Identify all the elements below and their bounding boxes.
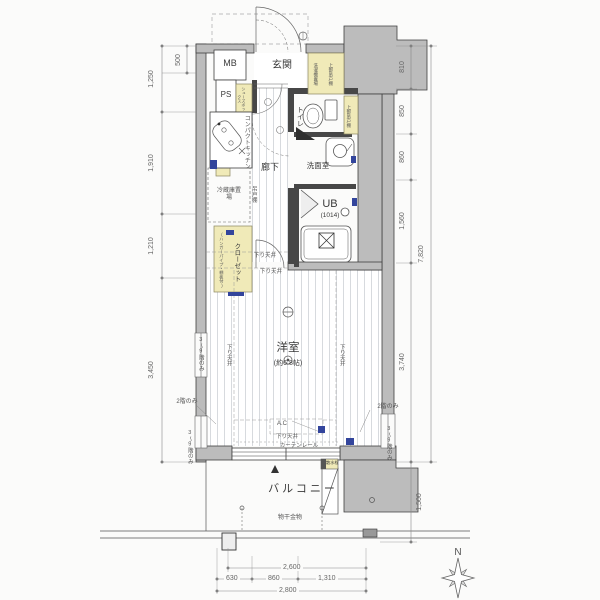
main-room-size-label: (約6.8帖) — [264, 360, 312, 368]
dim-right-810: 810 — [399, 45, 409, 89]
dim-bottom-1310: 1,310 — [316, 575, 338, 582]
main-room-label: 洋室 — [268, 342, 308, 355]
dim-left-1210: 1,210 — [148, 224, 158, 268]
upper-outline — [212, 14, 308, 44]
north-label: N — [448, 547, 468, 559]
dim-left-500: 500 — [175, 38, 185, 82]
floors-3-9-note-right: 3〜9階のみ — [385, 419, 391, 467]
unit-bath-size-label: (1014) — [308, 212, 352, 219]
laundry-space-label: 洗濯機置場 — [313, 56, 318, 92]
dim-bottom-2800: 2,800 — [277, 587, 299, 594]
toilet-label: トイレ — [296, 98, 303, 134]
ac-label: A.C — [272, 421, 292, 428]
toilet-cabinet-label: 上部吊戸棚 — [346, 98, 351, 134]
unit-bath-label: UB — [312, 198, 348, 211]
laundry-pole-label: 物干金物 — [266, 515, 314, 522]
lowered-ceiling-label-1: 下り天井 — [252, 253, 278, 259]
second-floor-note-left: 2階のみ — [172, 399, 202, 406]
compact-kitchen-label: コンパクトキッチン — [243, 110, 249, 174]
closet-label: クローゼット — [232, 234, 239, 290]
second-floor-note-right: 2階のみ — [372, 404, 404, 411]
shoe-box-label: シューズボックス — [237, 86, 245, 111]
entrance-label: 玄関 — [260, 60, 304, 72]
washroom-label: 洗面室 — [296, 162, 340, 171]
dim-left-1250: 1,250 — [148, 57, 158, 101]
dim-left-1910: 1,910 — [148, 141, 158, 185]
dim-right-860: 860 — [399, 135, 409, 179]
hanging-cupboard-label: 吊戸棚 — [250, 182, 256, 206]
balcony-window — [232, 448, 340, 460]
fridge-space-label: 冷蔵庫置場 — [216, 188, 242, 202]
curtain-rail-label: カーテンレール — [276, 443, 322, 449]
pillar — [222, 533, 236, 550]
pipe-space-label: PS — [214, 90, 238, 99]
dim-bottom-2600: 2,600 — [281, 564, 303, 571]
floor-plan-drawing — [0, 0, 600, 600]
hallway-label: 廊下 — [252, 162, 288, 172]
dim-right-1560: 1,560 — [399, 199, 409, 243]
dim-right-1500: 1,500 — [416, 480, 426, 524]
water-tap-label: 散水栓 — [326, 461, 338, 466]
lowered-ceiling-label-5: 下り天井 — [274, 434, 300, 440]
floor-plan: MB PS 玄関 洗濯機置場 上部吊戸棚 シューズボックス トイレ 上部吊戸棚 … — [0, 0, 600, 600]
dim-bottom-630: 630 — [224, 575, 240, 582]
floors-3-9-note-left-lower: 3〜9階のみ — [186, 423, 192, 471]
dim-bottom-860: 860 — [266, 575, 282, 582]
compass-rose — [441, 558, 475, 598]
lowered-ceiling-label-4: 下り天井 — [338, 342, 344, 368]
lowered-ceiling-label-3: 下り天井 — [225, 342, 231, 368]
closet-note-label: (ハンガーパイプ・棚板付) — [219, 229, 223, 291]
meter-box-label: MB — [214, 58, 246, 68]
dim-right-850: 850 — [399, 89, 409, 133]
dim-right-7820: 7,820 — [418, 232, 428, 276]
balcony-label: バルコニー — [258, 483, 348, 496]
lowered-ceiling-label-2: 下り天井 — [258, 269, 284, 275]
laundry-cabinet-label: 上部吊戸棚 — [328, 56, 333, 92]
dim-left-3450: 3,450 — [148, 348, 158, 392]
floors-3-9-note-left-upper: 3〜9階のみ — [197, 330, 203, 378]
dim-right-3740: 3,740 — [399, 340, 409, 384]
